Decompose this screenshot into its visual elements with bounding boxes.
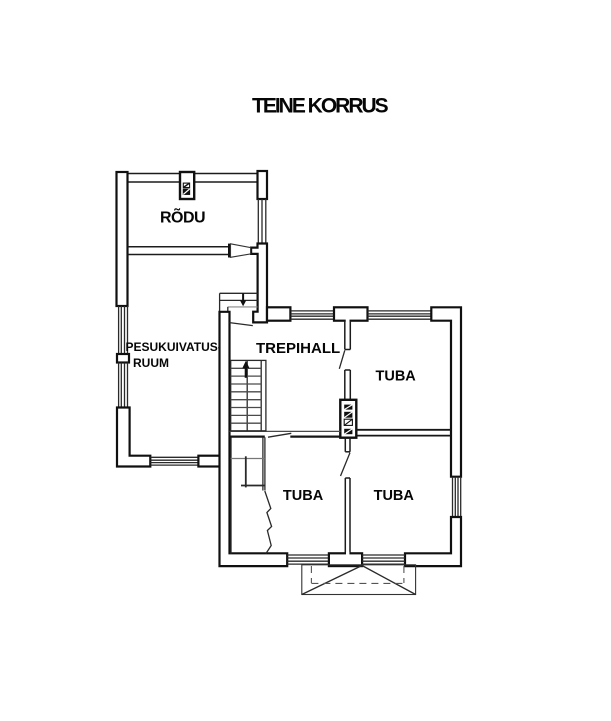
svg-text:TUBA: TUBA: [376, 369, 417, 385]
svg-text:TUBA: TUBA: [283, 488, 324, 504]
svg-text:TUBA: TUBA: [374, 488, 415, 504]
svg-text:RÕDU: RÕDU: [160, 207, 205, 227]
svg-text:TEINE KORRUS: TEINE KORRUS: [252, 95, 389, 118]
svg-text:TREPIHALL: TREPIHALL: [256, 340, 340, 357]
svg-text:RUUM: RUUM: [133, 356, 169, 370]
svg-text:PESUKUIVATUS-: PESUKUIVATUS-: [126, 340, 222, 354]
